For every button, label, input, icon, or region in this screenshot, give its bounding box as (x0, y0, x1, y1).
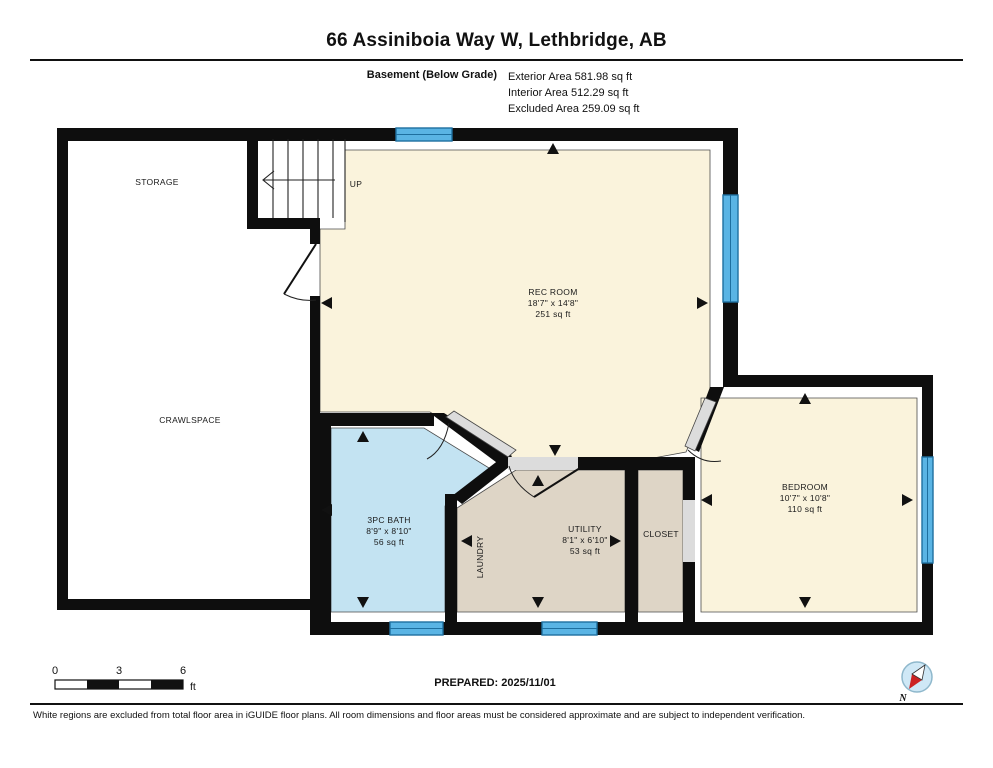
utility-sqft: 53 sq ft (570, 546, 601, 556)
scale-tick-0: 0 (52, 665, 58, 677)
door-opening (683, 500, 695, 562)
rec-room-sqft: 251 sq ft (535, 309, 571, 319)
bedroom-dims: 10'7" x 10'8" (780, 493, 831, 503)
floor-plan-drawing: UP STORAGE CRAWLSPACE REC ROOM 18'7" x 1… (0, 0, 993, 768)
bath-dims: 8'9" x 8'10" (366, 526, 412, 536)
laundry-label: LAUNDRY (475, 536, 485, 579)
bath-sqft: 56 sq ft (374, 537, 405, 547)
stair-up-label: UP (350, 179, 362, 189)
compass: N (898, 662, 932, 704)
scale-bar-segment (87, 680, 119, 689)
closet-label: CLOSET (643, 529, 679, 539)
utility-dims: 8'1" x 6'10" (562, 535, 608, 545)
utility-label: UTILITY (568, 524, 602, 534)
bedroom-sqft: 110 sq ft (788, 504, 823, 514)
scale-unit-label: ft (190, 681, 196, 693)
scale-tick-3: 3 (116, 665, 122, 677)
bedroom-label: BEDROOM (782, 482, 828, 492)
footer-disclaimer: White regions are excluded from total fl… (33, 710, 805, 721)
bath-label: 3PC BATH (367, 515, 410, 525)
closet-area (638, 470, 683, 612)
prepared-date: PREPARED: 2025/11/01 (434, 677, 555, 689)
door-opening (508, 457, 578, 470)
storage-label: STORAGE (135, 177, 179, 187)
rec-room-dims: 18'7" x 14'8" (528, 298, 579, 308)
scale-bar: 0 3 6 ft (52, 665, 196, 693)
footer-divider (30, 703, 963, 705)
scale-bar-segment (151, 680, 183, 689)
rec-room-label: REC ROOM (528, 287, 577, 297)
floor-plan-page: 66 Assiniboia Way W, Lethbridge, AB Base… (0, 0, 993, 768)
scale-tick-6: 6 (180, 665, 186, 677)
crawlspace-label: CRAWLSPACE (159, 415, 221, 425)
